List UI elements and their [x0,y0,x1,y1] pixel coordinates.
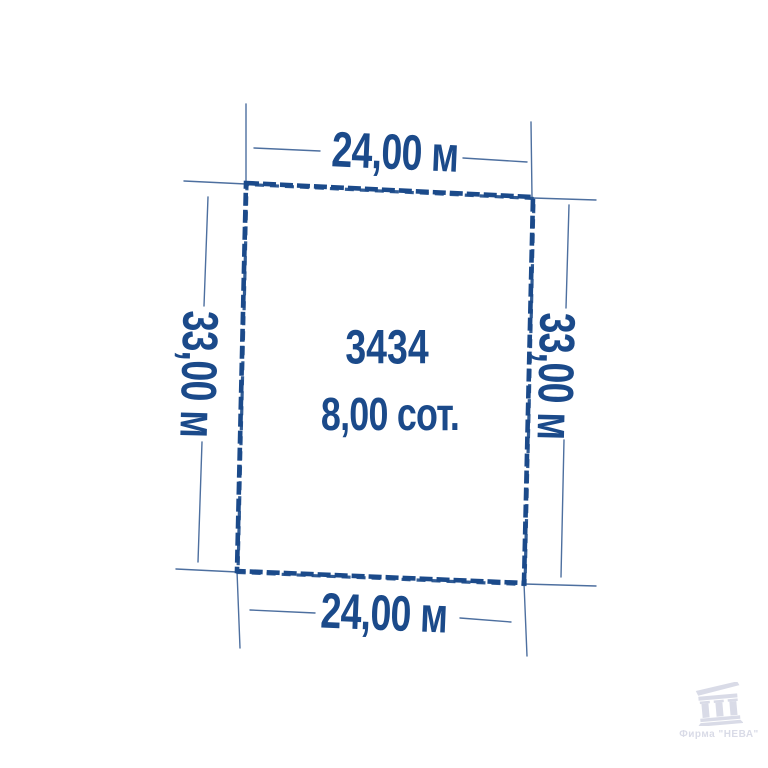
extension-line-top-right-horizontal [533,198,596,200]
dimension-line-right-top-segment [566,205,569,308]
plot-area-label: 8,00 сот. [321,387,459,441]
left-side-label: 33,00 м [168,310,229,438]
dimension-line-bottom-right-segment [460,618,511,622]
temple-columns-icon [695,682,743,726]
top-width-label: 24,00 м [330,120,459,183]
extension-line-top-left-horizontal [184,181,246,184]
extension-line-top-right-vertical [531,122,532,197]
plot-boundary [237,183,533,583]
bottom-width-label: 24,00 м [320,581,449,644]
extension-line-bottom-right-horizontal [524,584,596,586]
watermark: Фирма "НЕВА" [672,682,766,740]
dimension-line-top-right-segment [463,158,527,162]
plot-plan-drawing [0,0,768,768]
dimension-line-top-left-segment [254,148,320,151]
dimension-line-bottom-left-segment [250,610,315,613]
watermark-text: Фирма "НЕВА" [672,729,766,740]
extension-line-bottom-left-vertical [237,571,240,648]
right-side-label: 33,00 м [526,312,587,440]
extension-line-bottom-right-vertical [524,583,527,656]
dimension-line-left-top-segment [204,197,208,306]
dimension-lines [198,148,569,622]
dimension-line-left-bottom-segment [198,442,202,562]
extension-line-bottom-left-horizontal [176,569,237,572]
plot-plan: 24,00 м 24,00 м 33,00 м 33,00 м 3434 8,0… [0,0,768,768]
plot-number-label: 3434 [345,321,428,376]
plot-boundary-sketch-stroke [238,185,534,585]
dimension-line-right-bottom-segment [561,440,564,577]
